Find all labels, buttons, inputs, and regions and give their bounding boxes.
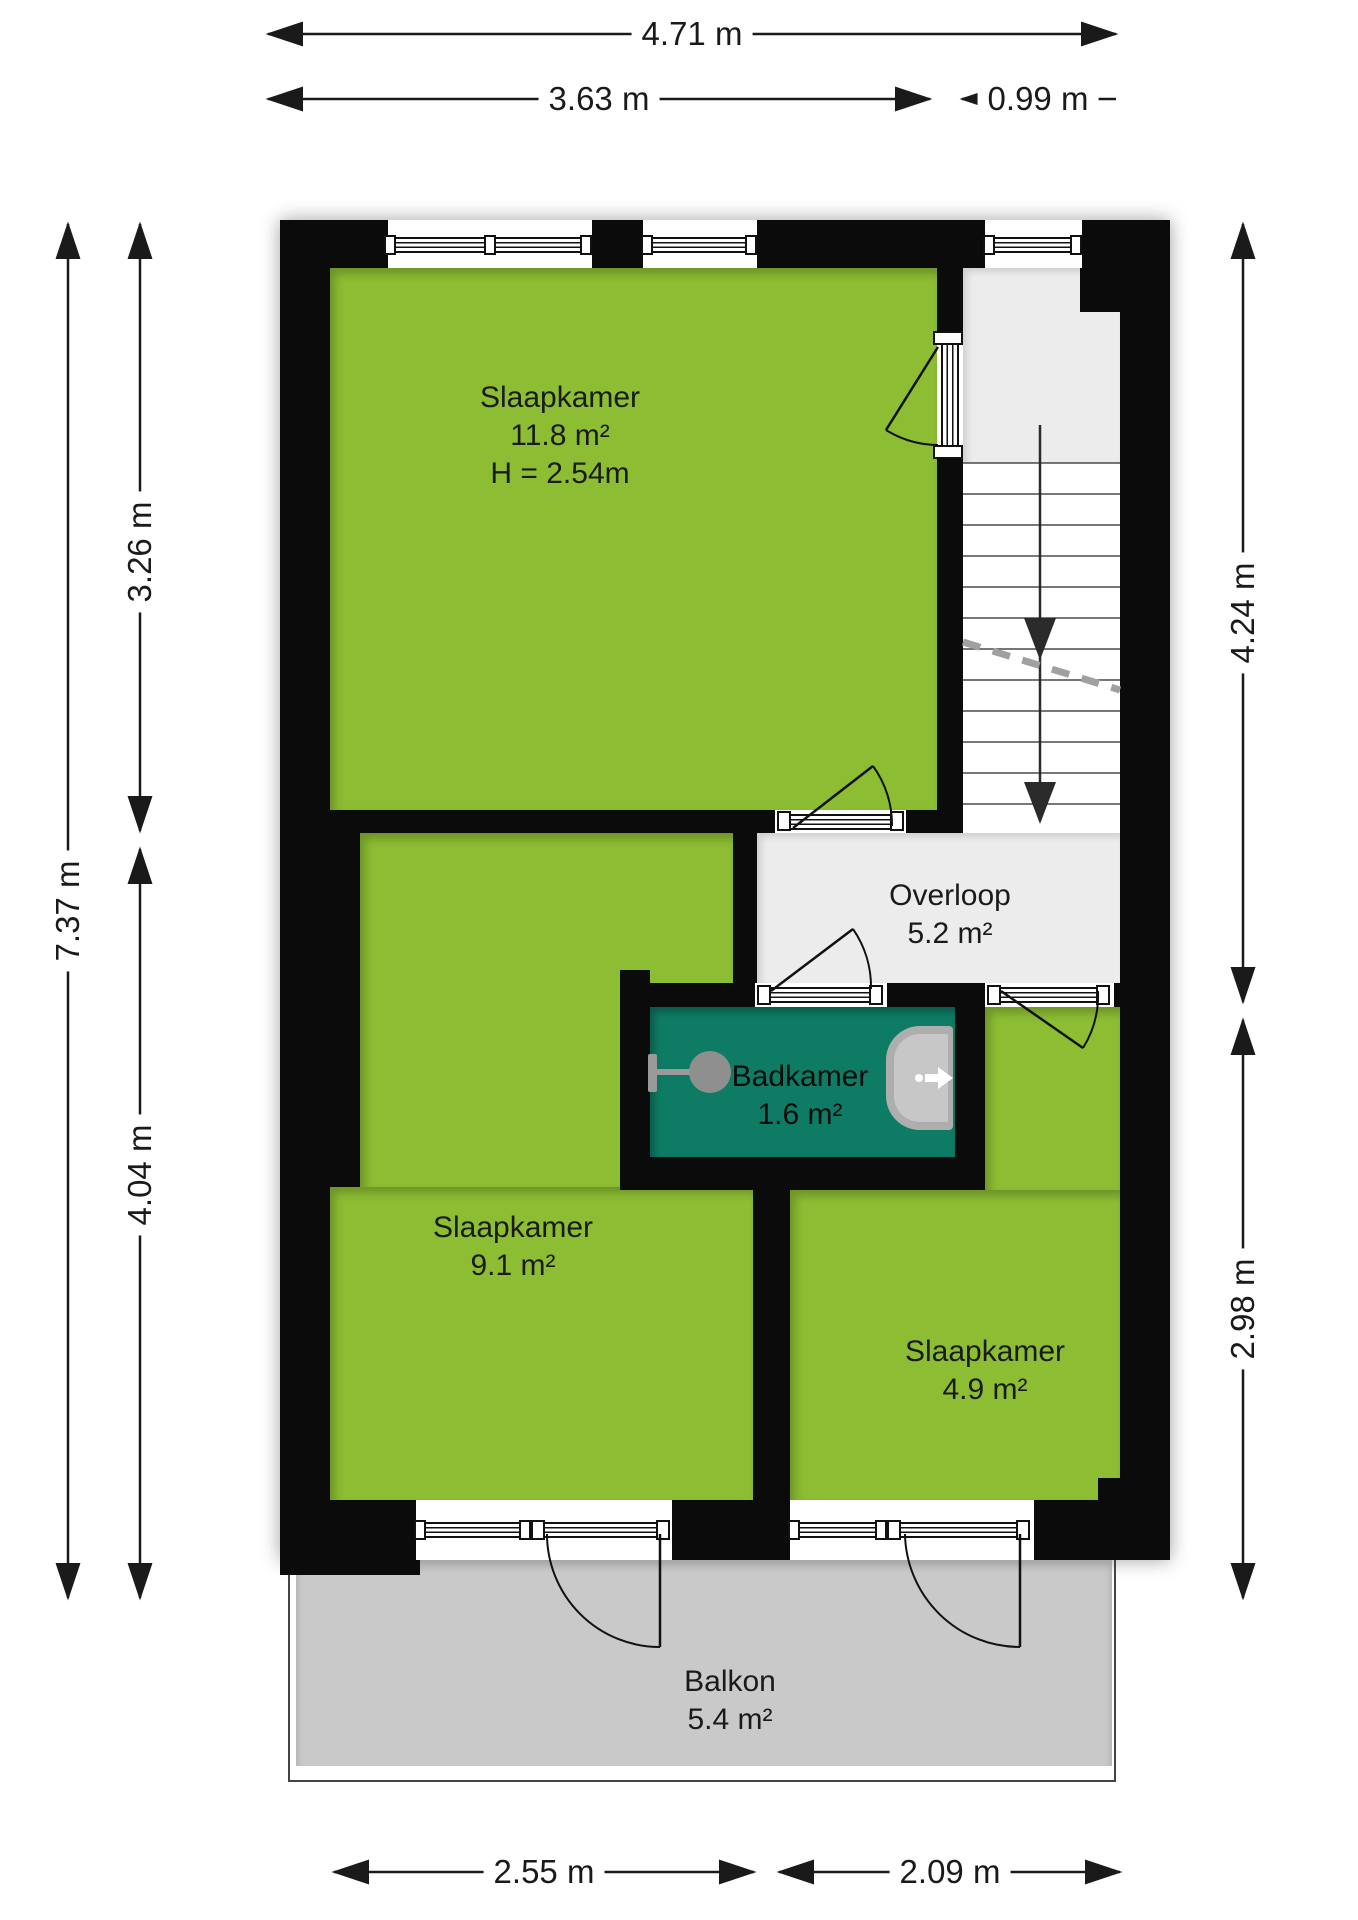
door-cap bbox=[890, 811, 904, 831]
door-leaf-bar bbox=[941, 345, 959, 445]
wall-right bbox=[1120, 268, 1170, 1560]
door-cap bbox=[531, 1520, 545, 1540]
window-glazing bbox=[426, 1522, 519, 1538]
room-slaapkamer-1 bbox=[330, 268, 937, 810]
dim-top-total: 4.71 m bbox=[632, 15, 753, 53]
door-cap bbox=[1096, 985, 1110, 1005]
window-cap bbox=[384, 235, 396, 255]
door-cap bbox=[933, 331, 963, 345]
door-cap bbox=[757, 985, 771, 1005]
wall-left bbox=[280, 268, 330, 1560]
dim-left-lower: 4.04 m bbox=[121, 1115, 159, 1236]
window-glazing bbox=[800, 1522, 875, 1538]
wall-left-chimney bbox=[330, 833, 360, 1187]
door-leaf-bar bbox=[771, 987, 869, 1003]
door-cap bbox=[656, 1520, 670, 1540]
window-glazing bbox=[995, 237, 1072, 253]
window-glazing bbox=[396, 237, 484, 253]
door-leaf-bar bbox=[545, 1522, 656, 1538]
door-cap bbox=[987, 985, 1001, 1005]
label-slaapkamer-3: Slaapkamer 4.9 m² bbox=[905, 1333, 1065, 1409]
staircase bbox=[963, 463, 1120, 835]
dim-right-upper: 4.24 m bbox=[1224, 553, 1262, 674]
door-cap bbox=[933, 445, 963, 459]
dim-bottom-right: 2.09 m bbox=[890, 1853, 1011, 1891]
window-cap bbox=[484, 235, 496, 255]
dim-left-upper: 3.26 m bbox=[121, 492, 159, 613]
window-cap bbox=[875, 1520, 887, 1540]
label-slaapkamer-1: Slaapkamer 11.8 m² H = 2.54m bbox=[480, 379, 640, 493]
wall-bottom-left-block bbox=[280, 1500, 420, 1575]
label-balkon: Balkon 5.4 m² bbox=[684, 1663, 776, 1739]
door-leaf-bar bbox=[1001, 987, 1096, 1003]
label-overloop: Overloop 5.2 m² bbox=[889, 877, 1011, 953]
door-leaf-bar bbox=[791, 814, 890, 830]
door-leaf-bar bbox=[901, 1522, 1016, 1538]
label-slaapkamer-2: Slaapkamer 9.1 m² bbox=[433, 1209, 593, 1285]
dim-left-total: 7.37 m bbox=[49, 851, 87, 972]
door-cap bbox=[1016, 1520, 1030, 1540]
window-cap bbox=[580, 235, 592, 255]
wall-bedroom-divider bbox=[753, 1187, 790, 1500]
window-cap bbox=[1070, 235, 1082, 255]
wall-step-block bbox=[1098, 1478, 1120, 1502]
window-cap bbox=[745, 235, 757, 255]
window-cap bbox=[519, 1520, 531, 1540]
door-cap bbox=[869, 985, 883, 1005]
dim-bottom-left: 2.55 m bbox=[484, 1853, 605, 1891]
door-cap bbox=[887, 1520, 901, 1540]
dim-top-left: 3.63 m bbox=[539, 80, 660, 118]
wall-bathroom-bottom bbox=[620, 1157, 985, 1190]
window-glazing bbox=[653, 237, 745, 253]
shower-head-icon bbox=[689, 1051, 731, 1093]
room-slaapkamer-3 bbox=[985, 1007, 1120, 1190]
dim-right-lower: 2.98 m bbox=[1224, 1249, 1262, 1370]
label-badkamer: Badkamer 1.6 m² bbox=[732, 1058, 869, 1134]
window-cap bbox=[641, 235, 653, 255]
dim-top-right: 0.99 m bbox=[978, 80, 1099, 118]
window-cap bbox=[788, 1520, 800, 1540]
floor-plan-canvas: Slaapkamer 11.8 m² H = 2.54m Overloop 5.… bbox=[0, 0, 1358, 1920]
bathtub-icon bbox=[886, 1026, 953, 1130]
window-cap bbox=[983, 235, 995, 255]
window-glazing bbox=[496, 237, 580, 253]
window-cap bbox=[414, 1520, 426, 1540]
wall-top-right-block bbox=[1080, 268, 1120, 312]
door-cap bbox=[777, 811, 791, 831]
wall-overloop-left bbox=[733, 833, 757, 983]
